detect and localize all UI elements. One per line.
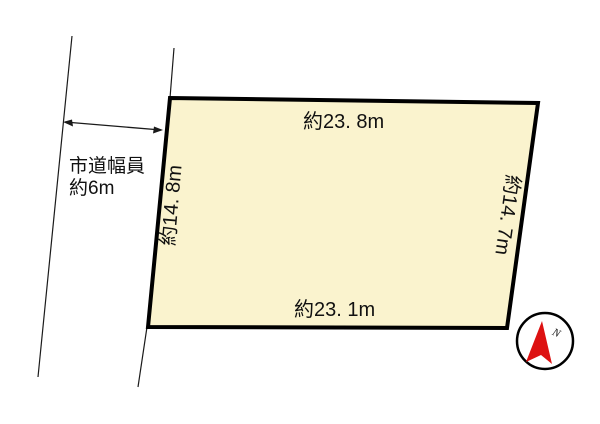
road-edge-right-upper-line — [170, 48, 174, 98]
road-edge-left-line — [38, 36, 72, 377]
plot-svg: 市道幅員 約6m 約23. 8m 約23. 1m 約14. 8m 約14. 7m… — [0, 0, 600, 424]
compass: N — [517, 313, 573, 369]
road-width-label-line1: 市道幅員 — [69, 155, 145, 177]
road-width-label-line2: 約6m — [69, 177, 114, 199]
land-plot-diagram: 市道幅員 約6m 約23. 8m 約23. 1m 約14. 8m 約14. 7m… — [0, 0, 600, 424]
dimension-top-label: 約23. 8m — [303, 110, 384, 133]
road-width-arrow — [63, 120, 163, 134]
road-width-arrow-line — [65, 122, 161, 130]
arrowhead-left-icon — [63, 120, 73, 127]
dimension-bottom-label: 約23. 1m — [294, 298, 375, 321]
arrowhead-right-icon — [153, 127, 163, 134]
road-edge-right-lower-line — [138, 327, 147, 387]
